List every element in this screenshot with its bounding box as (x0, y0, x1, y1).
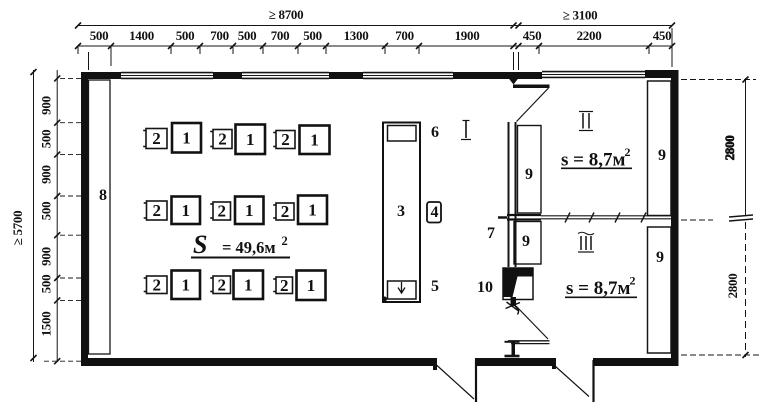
svg-text:500: 500 (303, 28, 322, 43)
svg-text:2: 2 (218, 130, 227, 149)
svg-text:1400: 1400 (129, 28, 154, 43)
svg-text:9: 9 (658, 147, 666, 164)
svg-text:900: 900 (39, 96, 54, 115)
svg-text:1: 1 (182, 128, 191, 147)
svg-text:500: 500 (39, 275, 54, 294)
svg-text:1: 1 (308, 200, 317, 219)
svg-text:700: 700 (210, 28, 229, 43)
svg-text:1300: 1300 (344, 28, 369, 43)
svg-text:2: 2 (625, 145, 631, 159)
svg-text:1: 1 (310, 130, 319, 149)
svg-text:S: S (193, 230, 207, 259)
svg-text:1: 1 (245, 201, 254, 220)
svg-text:500: 500 (39, 130, 54, 149)
svg-text:1: 1 (182, 201, 191, 220)
svg-text:s = 8,7м: s = 8,7м (561, 150, 625, 171)
svg-text:700: 700 (271, 28, 290, 43)
svg-text:2: 2 (218, 275, 227, 294)
svg-text:8: 8 (99, 187, 107, 204)
svg-text:4: 4 (431, 204, 439, 221)
svg-text:500: 500 (39, 202, 54, 221)
svg-text:≥ 5700: ≥ 5700 (10, 211, 25, 246)
svg-text:2: 2 (281, 130, 290, 149)
svg-text:2800: 2800 (725, 274, 740, 299)
svg-text:1900: 1900 (455, 28, 480, 43)
svg-text:1: 1 (246, 130, 255, 149)
svg-text:2: 2 (280, 276, 289, 295)
svg-text:900: 900 (39, 165, 54, 184)
svg-text:9: 9 (525, 166, 533, 183)
svg-text:1: 1 (244, 275, 253, 294)
svg-text:1500: 1500 (39, 312, 54, 337)
svg-text:450: 450 (653, 28, 672, 43)
svg-text:500: 500 (238, 28, 257, 43)
svg-text:1: 1 (307, 276, 316, 295)
svg-text:5: 5 (431, 278, 439, 295)
svg-text:6: 6 (431, 124, 439, 141)
svg-text:7: 7 (487, 225, 495, 242)
svg-text:≥ 8700: ≥ 8700 (269, 7, 304, 22)
svg-text:2200: 2200 (577, 28, 602, 43)
svg-text:2: 2 (218, 202, 227, 221)
svg-text:2: 2 (153, 201, 162, 220)
svg-text:500: 500 (90, 28, 109, 43)
svg-text:10: 10 (477, 279, 493, 296)
svg-text:s = 8,7м: s = 8,7м (566, 278, 630, 299)
svg-text:500: 500 (176, 28, 195, 43)
svg-text:≥ 3100: ≥ 3100 (563, 8, 598, 23)
svg-text:2800: 2800 (722, 136, 737, 161)
svg-text:2: 2 (282, 234, 288, 248)
svg-text:3: 3 (397, 203, 405, 220)
svg-text:700: 700 (395, 28, 414, 43)
svg-text:9: 9 (656, 249, 664, 266)
svg-text:1: 1 (182, 275, 191, 294)
svg-text:2: 2 (281, 202, 290, 221)
svg-text:= 49,6м: = 49,6м (222, 238, 276, 257)
svg-text:900: 900 (39, 247, 54, 266)
svg-text:450: 450 (523, 28, 542, 43)
svg-text:2: 2 (630, 274, 636, 288)
svg-text:9: 9 (522, 233, 530, 250)
svg-text:2: 2 (153, 275, 162, 294)
svg-text:2: 2 (152, 129, 161, 148)
